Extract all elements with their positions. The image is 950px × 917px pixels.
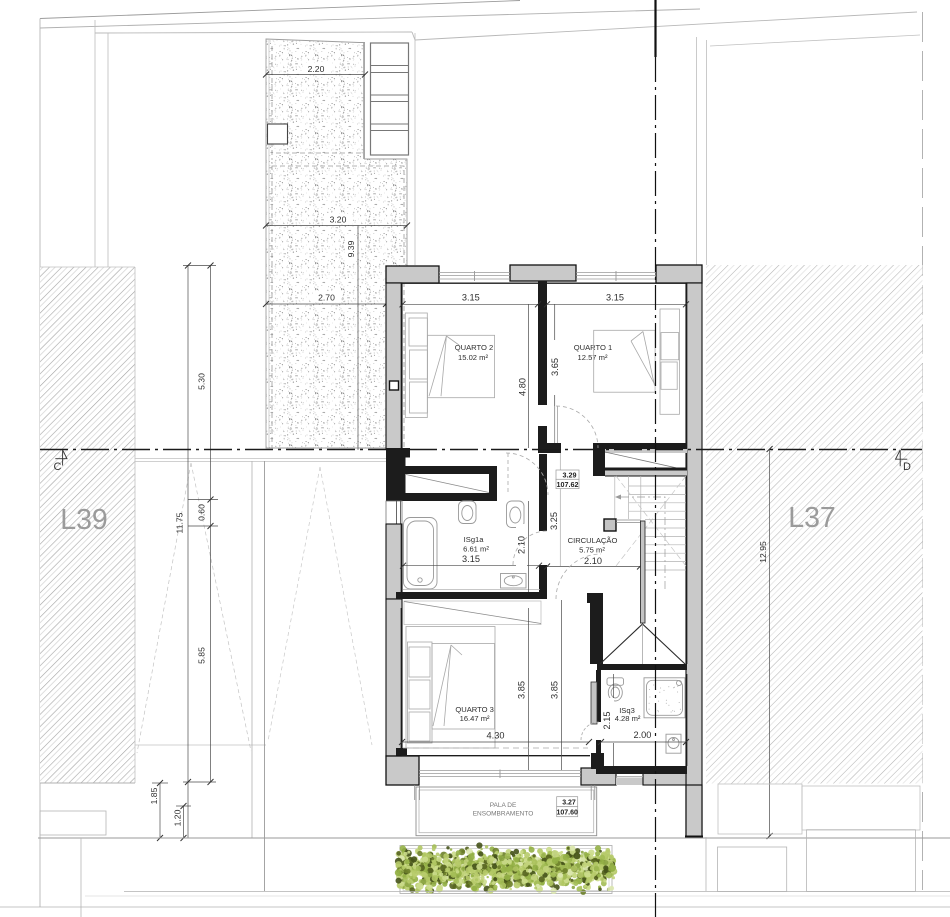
svg-text:3.15: 3.15 xyxy=(462,293,480,303)
svg-text:2.20: 2.20 xyxy=(308,64,325,74)
svg-text:107.60: 107.60 xyxy=(556,810,578,817)
svg-text:3.20: 3.20 xyxy=(330,215,347,225)
svg-text:2.00: 2.00 xyxy=(633,730,651,740)
svg-text:3.15: 3.15 xyxy=(606,293,624,303)
svg-text:ENSOMBRAMENTO: ENSOMBRAMENTO xyxy=(473,811,534,818)
svg-text:QUARTO 1: QUARTO 1 xyxy=(574,343,613,352)
svg-text:16.47 m²: 16.47 m² xyxy=(460,714,490,723)
svg-text:PALA DE: PALA DE xyxy=(490,802,517,809)
svg-text:9.39: 9.39 xyxy=(346,240,356,257)
svg-text:1.85: 1.85 xyxy=(149,787,159,804)
svg-text:3.15: 3.15 xyxy=(462,554,480,564)
svg-text:3.85: 3.85 xyxy=(550,681,560,699)
svg-text:6.61 m²: 6.61 m² xyxy=(463,545,489,554)
svg-text:QUARTO 3: QUARTO 3 xyxy=(455,705,494,714)
svg-text:12.57 m²: 12.57 m² xyxy=(578,353,608,362)
svg-text:0.60: 0.60 xyxy=(197,504,207,521)
svg-text:11.75: 11.75 xyxy=(175,512,185,533)
svg-text:CIRCULAÇÃO: CIRCULAÇÃO xyxy=(568,536,618,545)
svg-text:3.25: 3.25 xyxy=(549,512,559,530)
svg-text:4.80: 4.80 xyxy=(518,378,528,396)
svg-text:2.10: 2.10 xyxy=(584,556,602,566)
svg-text:107.62: 107.62 xyxy=(557,480,579,489)
svg-text:3.65: 3.65 xyxy=(550,358,560,376)
svg-text:4.28 m²: 4.28 m² xyxy=(615,714,641,723)
svg-text:5.75 m²: 5.75 m² xyxy=(579,546,605,555)
svg-text:5.30: 5.30 xyxy=(197,373,207,390)
svg-text:2.70: 2.70 xyxy=(318,293,335,303)
svg-text:QUARTO 2: QUARTO 2 xyxy=(455,343,494,352)
svg-text:3.85: 3.85 xyxy=(517,681,527,699)
svg-text:L37: L37 xyxy=(788,502,836,534)
svg-text:4.30: 4.30 xyxy=(487,731,505,741)
svg-text:D: D xyxy=(903,461,911,473)
svg-text:12.95: 12.95 xyxy=(758,541,768,563)
svg-text:ISg1a: ISg1a xyxy=(464,535,485,544)
svg-text:15.02 m²: 15.02 m² xyxy=(458,353,488,362)
svg-text:5.85: 5.85 xyxy=(197,647,207,664)
svg-text:3.29: 3.29 xyxy=(563,471,577,480)
svg-text:C: C xyxy=(54,461,62,473)
svg-text:2.15: 2.15 xyxy=(602,712,612,730)
svg-text:1.20: 1.20 xyxy=(173,809,183,826)
svg-text:3.27: 3.27 xyxy=(562,800,576,807)
svg-text:L39: L39 xyxy=(60,504,108,536)
